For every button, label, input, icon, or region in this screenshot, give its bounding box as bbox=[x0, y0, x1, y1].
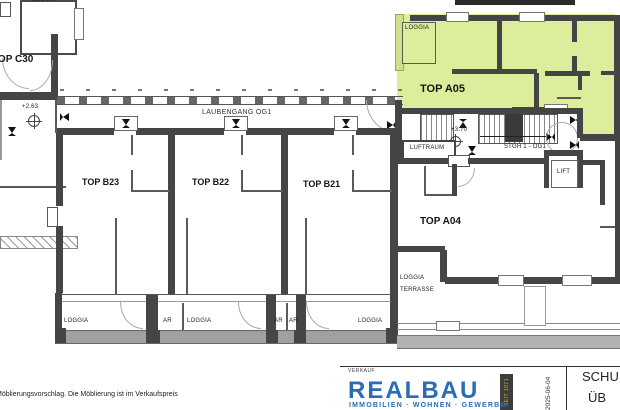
wall-segment bbox=[580, 134, 620, 141]
brand-logo-text: REALBAU bbox=[348, 377, 479, 405]
door-symbol bbox=[47, 207, 58, 227]
wall-segment bbox=[115, 218, 117, 294]
wall-segment bbox=[281, 135, 288, 295]
wall-segment bbox=[266, 330, 278, 343]
wall-segment bbox=[0, 92, 58, 100]
wall-segment bbox=[614, 15, 620, 136]
loggia-a05-label: LOGGIA bbox=[405, 25, 429, 31]
wall-segment bbox=[468, 158, 546, 164]
window-symbol bbox=[498, 275, 524, 286]
wall-detail bbox=[0, 2, 11, 17]
loggia-b23-label: LOGGIA bbox=[64, 318, 88, 324]
wall-segment bbox=[455, 0, 575, 5]
lift-label: LIFT bbox=[557, 169, 570, 175]
wall-segment bbox=[545, 71, 590, 76]
sheet-title-line1: SCHU bbox=[582, 369, 619, 384]
wall-segment bbox=[131, 135, 133, 155]
entry-arrow-icon bbox=[232, 119, 240, 128]
wall-segment bbox=[452, 69, 537, 74]
window-sill-hatch bbox=[0, 236, 78, 249]
direction-arrow-icon bbox=[570, 141, 579, 149]
ar-label: AR bbox=[274, 318, 283, 324]
wall-segment bbox=[572, 20, 577, 42]
wall-segment bbox=[131, 190, 170, 192]
loggia-b21-label: LOGGIA bbox=[358, 318, 382, 324]
unit-b22-label: TOP B22 bbox=[192, 177, 229, 187]
luftraum-label: LUFTRAUM bbox=[410, 145, 444, 151]
window-symbol bbox=[74, 8, 84, 40]
survey-point-icon bbox=[28, 115, 40, 127]
floorplan-canvas: LOGGIA TOP A05 LOGGIA TOP C30 +2.63 LAUB… bbox=[0, 0, 620, 410]
terrace-edge-line bbox=[397, 323, 620, 324]
wall-segment bbox=[544, 150, 549, 188]
titleblock-line bbox=[340, 366, 620, 367]
loggia-c30-label: LOGGIA bbox=[32, 0, 56, 3]
entry-arrow-icon bbox=[342, 119, 350, 128]
ar-label: AR bbox=[289, 318, 298, 324]
entry-arrow-icon bbox=[8, 127, 16, 136]
terrace-parapet bbox=[397, 335, 620, 349]
wall-segment bbox=[497, 20, 502, 73]
wall-segment bbox=[55, 328, 66, 343]
window-symbol bbox=[519, 12, 545, 22]
terrace-edge-line bbox=[397, 329, 620, 330]
level-c30-text: +2.63 bbox=[22, 104, 38, 110]
entry-door-b21 bbox=[334, 116, 358, 131]
wall-segment bbox=[600, 165, 605, 205]
wall-segment bbox=[305, 218, 307, 294]
stair-direction-line bbox=[480, 136, 546, 137]
wall-segment bbox=[182, 303, 184, 332]
wall-segment bbox=[186, 218, 188, 294]
window-symbol bbox=[436, 321, 460, 331]
wall-segment bbox=[296, 295, 306, 333]
wall-segment bbox=[56, 133, 63, 206]
wall-segment bbox=[352, 190, 392, 192]
entry-door-b23 bbox=[114, 116, 138, 131]
wall-segment bbox=[577, 108, 583, 138]
window-band-line bbox=[57, 294, 391, 295]
wall-segment bbox=[241, 135, 243, 155]
door-swing-arc bbox=[120, 302, 143, 329]
corridor-railing bbox=[57, 96, 403, 105]
loggia-b22-label: LOGGIA bbox=[187, 318, 211, 324]
wall-segment bbox=[615, 140, 620, 283]
wall-segment bbox=[136, 128, 224, 135]
wall-segment bbox=[146, 295, 158, 333]
unit-c30-label: TOP C30 bbox=[0, 54, 33, 65]
window-symbol bbox=[562, 275, 592, 286]
door-swing-arc bbox=[30, 60, 53, 91]
wall-segment bbox=[286, 303, 288, 332]
disclaimer-text: Möblierungsvorschlag. Die Möblierung ist… bbox=[0, 391, 178, 398]
loggia-a04-label: LOGGIA bbox=[400, 275, 424, 281]
wall-segment bbox=[241, 190, 283, 192]
survey-point-vline bbox=[34, 113, 35, 129]
wall-segment bbox=[395, 158, 448, 164]
door-swing-arc bbox=[238, 302, 261, 329]
entry-arrow-icon bbox=[122, 119, 130, 128]
titleblock-divider bbox=[566, 366, 567, 410]
window-symbol bbox=[446, 12, 469, 22]
wall-segment bbox=[57, 128, 114, 135]
wall-segment bbox=[294, 330, 306, 343]
door-swing-arc bbox=[306, 302, 329, 329]
ar-label: AR bbox=[163, 318, 172, 324]
wall-segment bbox=[246, 128, 334, 135]
terrace-pillar bbox=[524, 286, 546, 326]
stair-break bbox=[505, 114, 523, 142]
unit-b23-label: TOP B23 bbox=[82, 177, 119, 187]
brand-tagline: IMMOBILIEN · WOHNEN · GEWERBE bbox=[349, 402, 506, 409]
unit-a05-label: TOP A05 bbox=[420, 83, 465, 95]
window-symbol bbox=[0, 100, 2, 160]
wall-segment bbox=[352, 170, 354, 192]
wall-segment bbox=[424, 166, 426, 196]
wall-segment bbox=[557, 97, 581, 99]
balcony-edge-dashed-line bbox=[60, 89, 405, 91]
wall-segment bbox=[445, 277, 620, 284]
door-swing-arc bbox=[458, 168, 475, 187]
corridor-label: LAUBENGANG OG1 bbox=[202, 109, 272, 116]
wall-segment bbox=[266, 295, 276, 333]
wall-segment bbox=[241, 170, 243, 192]
wall-segment bbox=[410, 15, 615, 21]
plan-date: 2025-06-04 bbox=[545, 369, 552, 410]
wall-segment bbox=[56, 226, 63, 293]
sheet-title-line2: ÜB bbox=[588, 390, 606, 405]
wall-segment bbox=[578, 76, 582, 90]
loggia-c30-box bbox=[20, 0, 77, 55]
entry-door-b22 bbox=[224, 116, 248, 131]
wall-segment bbox=[55, 293, 62, 332]
wall-segment bbox=[131, 170, 133, 192]
wall-segment bbox=[398, 246, 445, 252]
unit-a05-area-extension bbox=[580, 108, 615, 136]
wall-segment bbox=[168, 135, 175, 295]
wall-segment bbox=[146, 330, 160, 343]
direction-arrow-icon bbox=[468, 146, 476, 155]
wall-segment bbox=[386, 328, 397, 343]
unit-a04-label: TOP A04 bbox=[420, 216, 461, 227]
terrasse-label: TERRASSE bbox=[400, 287, 434, 293]
loggia-parapet bbox=[55, 330, 397, 344]
direction-arrow-icon bbox=[60, 113, 69, 121]
unit-b21-label: TOP B21 bbox=[303, 179, 340, 189]
verkauf-text: VERKAUF bbox=[348, 368, 375, 374]
window-band-line bbox=[57, 301, 391, 302]
wall-segment bbox=[352, 135, 354, 155]
wall-segment bbox=[452, 164, 457, 196]
level-stair-text: +3.70 bbox=[451, 127, 467, 133]
